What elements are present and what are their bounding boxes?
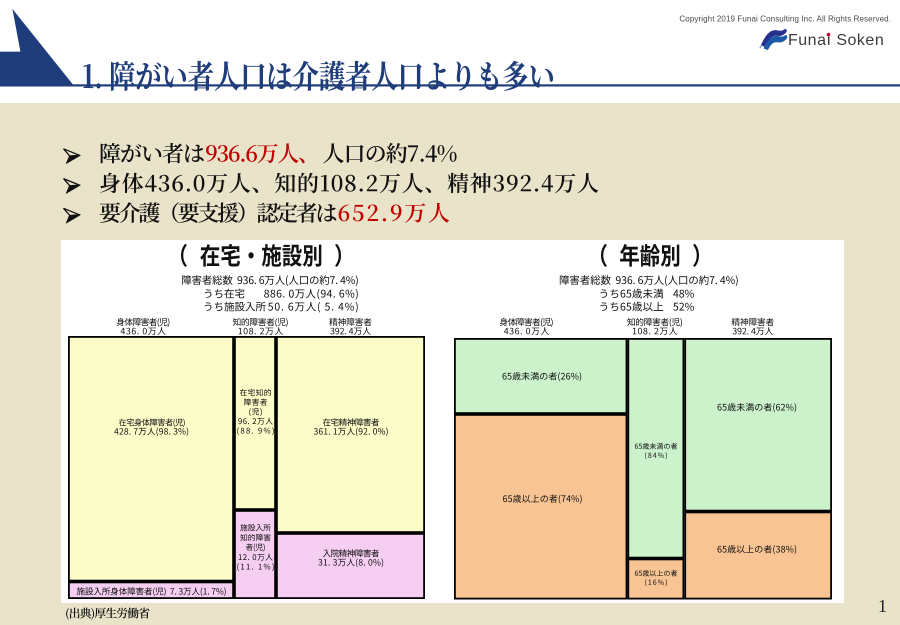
svg-text:Funaı Soken: Funaı Soken [788, 32, 884, 49]
svg-text:1: 1 [878, 596, 887, 616]
svg-text:Copyright 2019 Funai Consulti: Copyright 2019 Funai Consulting Inc. All… [679, 15, 891, 24]
